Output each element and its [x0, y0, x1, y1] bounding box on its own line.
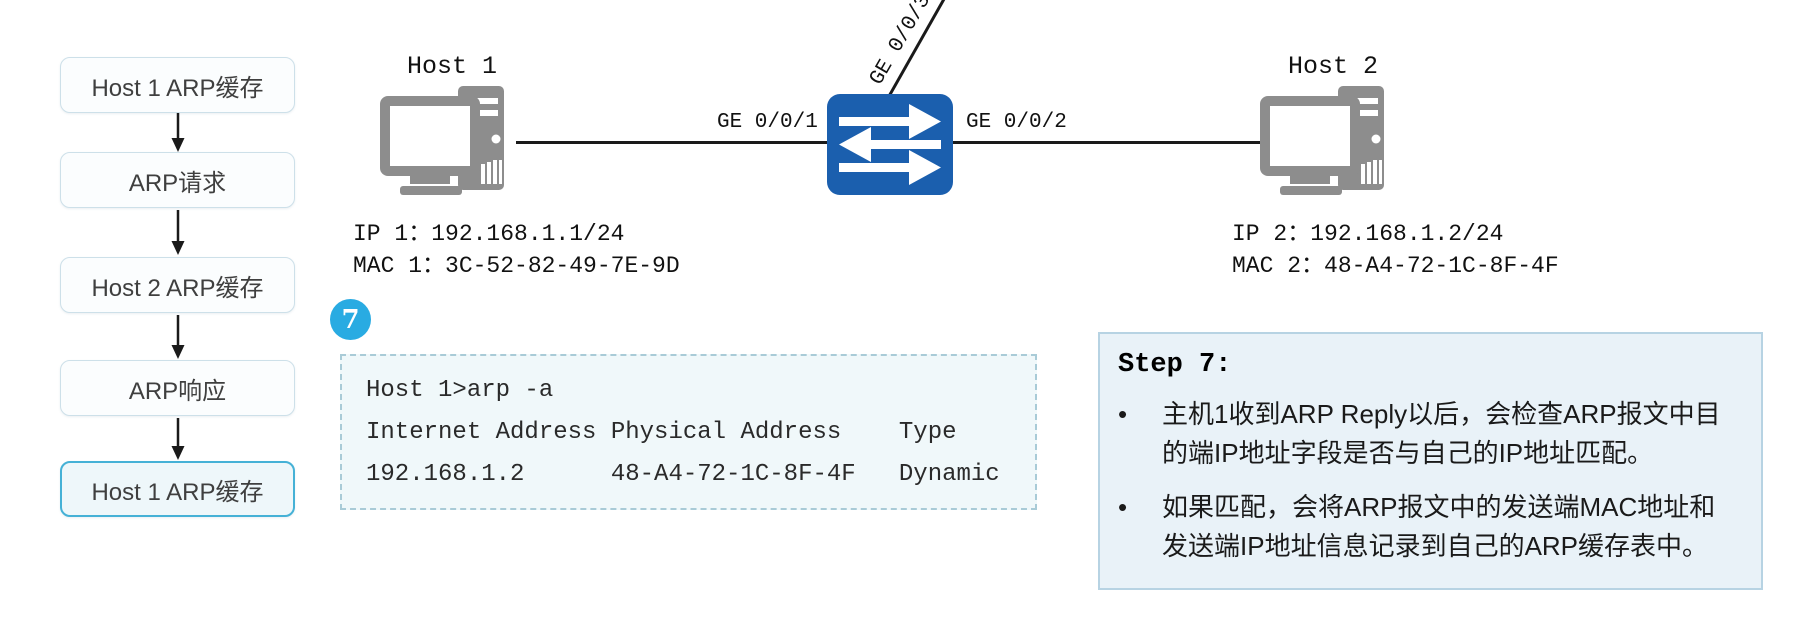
switch-port-label-left: GE 0/0/1 [717, 111, 818, 134]
console-entry-line: 192.168.1.2 48-A4-72-1C-8F-4F Dynamic [366, 454, 1035, 496]
flowchart-node-label: Host 2 ARP缓存 [91, 268, 263, 303]
flowchart-node-host1-arp-cache: Host 1 ARP缓存 [60, 57, 295, 113]
host2-label: Host 2 [1263, 52, 1403, 81]
flowchart-node-arp-reply: ARP响应 [60, 360, 295, 416]
host2-mac-label: MAC 2：48-A4-72-1C-8F-4F [1232, 250, 1559, 282]
host1-label: Host 1 [382, 52, 522, 81]
switch-port-label-right: GE 0/0/2 [966, 111, 1067, 134]
flow-down-arrow-icon [170, 418, 186, 460]
flowchart-node-host1-arp-cache-final: Host 1 ARP缓存 [60, 461, 295, 517]
host1-computer-icon [378, 86, 520, 198]
flowchart-node-label: ARP请求 [129, 163, 226, 198]
step7-bullet-1: • 主机1收到ARP Reply以后，会检查ARP报文中目的端IP地址字段是否与… [1118, 395, 1741, 473]
bullet-text: 如果匹配，会将ARP报文中的发送端MAC地址和发送端IP地址信息记录到自己的AR… [1162, 488, 1741, 566]
bullet-text: 主机1收到ARP Reply以后，会检查ARP报文中目的端IP地址字段是否与自己… [1162, 395, 1741, 473]
bullet-dot: • [1118, 488, 1162, 566]
console-command-line: Host 1>arp -a [366, 370, 1035, 412]
flowchart-node-label: ARP响应 [129, 371, 226, 406]
flowchart-node-arp-request: ARP请求 [60, 152, 295, 208]
flowchart-node-label: Host 1 ARP缓存 [91, 472, 263, 507]
link-host1-switch [516, 141, 827, 144]
arp-console-output: Host 1>arp -a Internet Address Physical … [340, 354, 1037, 510]
arp-process-diagram: Host 1 ARP缓存 ARP请求 Host 2 ARP缓存 ARP响应 Ho… [0, 0, 1820, 618]
console-header-line: Internet Address Physical Address Type [366, 412, 1035, 454]
flowchart-node-host2-arp-cache: Host 2 ARP缓存 [60, 257, 295, 313]
flow-down-arrow-icon [170, 113, 186, 152]
step7-explanation-panel: Step 7: • 主机1收到ARP Reply以后，会检查ARP报文中目的端I… [1098, 332, 1763, 590]
bullet-dot: • [1118, 395, 1162, 473]
link-switch-host2 [953, 141, 1262, 144]
host1-mac-label: MAC 1：3C-52-82-49-7E-9D [353, 250, 680, 282]
host2-ip-label: IP 2：192.168.1.2/24 [1232, 218, 1503, 250]
step-number-badge: 7 [330, 299, 371, 340]
flow-down-arrow-icon [170, 210, 186, 255]
step7-bullet-2: • 如果匹配，会将ARP报文中的发送端MAC地址和发送端IP地址信息记录到自己的… [1118, 488, 1741, 566]
switch-icon [827, 94, 953, 195]
step7-title: Step 7: [1118, 350, 1741, 380]
flow-down-arrow-icon [170, 315, 186, 359]
host2-computer-icon [1258, 86, 1400, 198]
host1-ip-label: IP 1：192.168.1.1/24 [353, 218, 624, 250]
flowchart-node-label: Host 1 ARP缓存 [91, 68, 263, 103]
